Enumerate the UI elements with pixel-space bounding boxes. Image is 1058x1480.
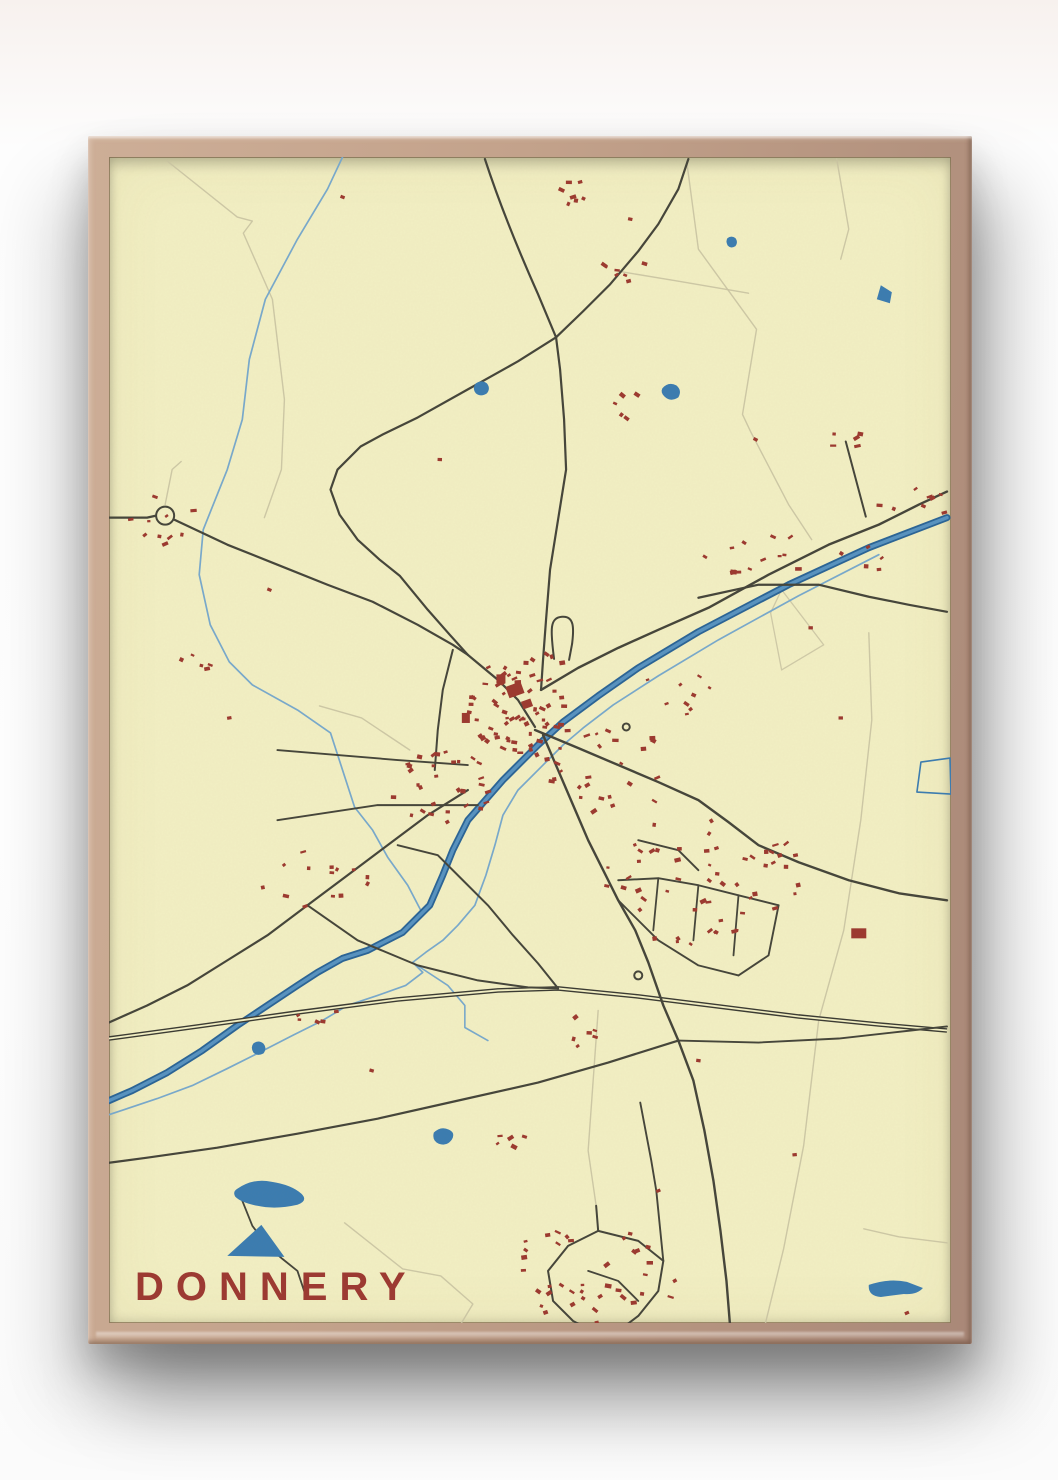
poster-title: DONNERY	[135, 1267, 418, 1307]
map-canvas	[109, 157, 951, 1323]
poster-frame: DONNERY	[88, 136, 972, 1344]
wall-background: DONNERY	[0, 0, 1058, 1480]
map-poster: DONNERY	[109, 157, 951, 1323]
